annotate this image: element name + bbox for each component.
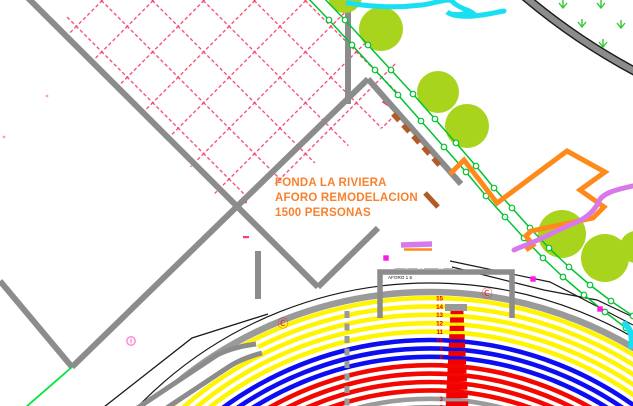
survey-node	[441, 144, 447, 150]
seating-row-arc	[46, 306, 633, 406]
survey-node	[473, 163, 479, 169]
amphitheater-seating-rings	[23, 283, 633, 406]
row-number: 5	[440, 379, 444, 386]
survey-node	[560, 274, 566, 280]
row-number: 12	[436, 321, 443, 328]
row-number: 9	[440, 346, 444, 353]
stage-step	[445, 304, 467, 311]
grass-arrow-icon	[599, 39, 607, 47]
survey-node	[326, 17, 332, 23]
row-number: 14	[436, 304, 443, 311]
green-boundary-line	[26, 367, 72, 406]
grass-arrow-icon	[559, 0, 567, 8]
row-number: 6	[440, 371, 444, 378]
benchmark-symbol: Ⓒ	[278, 317, 289, 330]
pink-speck	[46, 95, 49, 98]
magenta-post-marker	[597, 306, 602, 311]
row-number: 13	[436, 312, 443, 319]
stage-note-bottom: AFORO 1 6	[388, 275, 412, 280]
magenta-post-marker	[530, 276, 535, 281]
brown-curb-segment	[425, 193, 438, 207]
road-corner-west	[0, 281, 72, 367]
grid-tick	[243, 236, 249, 238]
site-plan-canvas: 15141312111098765432 ·――··――· ·· ―――·· ·…	[0, 0, 633, 406]
row-number: 3	[440, 396, 444, 403]
grass-arrow-icon	[617, 20, 625, 28]
stair-tread	[446, 401, 468, 406]
survey-node	[581, 292, 587, 298]
annotation-line-1: FONDA LA RIVIERA	[275, 177, 387, 189]
survey-node	[418, 118, 424, 124]
road-top-right	[524, 0, 633, 72]
survey-node	[608, 298, 614, 304]
stair-tread	[449, 343, 465, 348]
survey-node	[365, 42, 371, 48]
grass-arrow-icon	[578, 19, 586, 27]
benchmark-symbol: Ⓒ	[482, 287, 493, 300]
pink-node-symbol	[127, 337, 135, 345]
row-number: 7	[440, 363, 444, 370]
annotation-line-2: AFORO REMODELACION	[275, 192, 418, 204]
grass-markers	[559, 0, 625, 47]
row-number: 15	[436, 295, 443, 302]
stair-tread	[446, 393, 468, 398]
survey-node	[509, 205, 515, 211]
survey-node	[491, 185, 497, 191]
row-number: 8	[440, 354, 444, 361]
survey-node	[587, 282, 593, 288]
road-corner-spur	[318, 228, 378, 287]
survey-node	[546, 245, 552, 251]
survey-node	[540, 255, 546, 261]
violet-bar	[401, 244, 432, 245]
magenta-post-marker	[383, 255, 388, 260]
survey-node	[395, 92, 401, 98]
stair-tread	[449, 334, 465, 339]
stair-tread	[448, 359, 466, 364]
stair-tread	[447, 385, 468, 390]
survey-node	[602, 309, 608, 315]
survey-node	[463, 169, 469, 175]
stair-tread	[450, 326, 465, 331]
road-top-right-surface	[524, 0, 633, 72]
survey-node	[342, 17, 348, 23]
row-number: 4	[440, 388, 444, 395]
survey-node	[566, 264, 572, 270]
survey-node	[432, 116, 438, 122]
stage-note-top: ·――··――· ·· ―――·· ·――	[394, 266, 453, 271]
survey-node	[502, 214, 508, 220]
annotation-line-3: 1500 PERSONAS	[275, 207, 371, 219]
row-number: 10	[436, 337, 443, 344]
survey-node	[388, 67, 394, 73]
row-number: 11	[436, 329, 443, 336]
survey-node	[349, 42, 355, 48]
annotation-block: FONDA LA RIVIERA AFORO REMODELACION 1500…	[275, 177, 418, 219]
stair-tread	[450, 317, 464, 322]
survey-node	[410, 91, 416, 97]
tree-icon	[445, 104, 489, 148]
stair-tread	[447, 376, 467, 381]
survey-node	[453, 140, 459, 146]
pink-speck	[3, 136, 6, 139]
stair-tread	[448, 351, 465, 356]
grass-arrow-icon	[597, 0, 605, 8]
survey-node	[372, 67, 378, 73]
stair-tread	[448, 368, 467, 373]
